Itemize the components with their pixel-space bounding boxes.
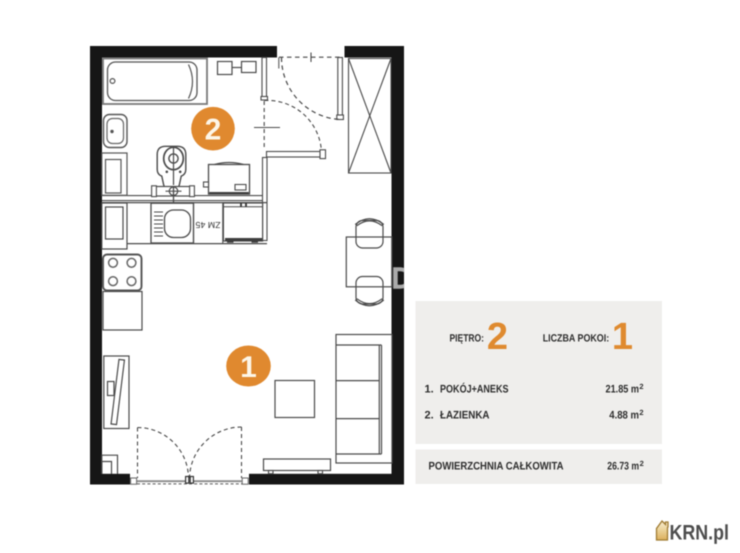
svg-text:PIĘTRO:: PIĘTRO: [450, 333, 485, 345]
svg-text:2: 2 [487, 316, 508, 358]
svg-text:2: 2 [205, 114, 222, 147]
svg-text:1: 1 [240, 351, 257, 384]
svg-text:2.: 2. [425, 410, 434, 422]
svg-text:26.73 m: 26.73 m [607, 461, 639, 473]
svg-text:1.: 1. [425, 384, 434, 396]
svg-text:4.88 m: 4.88 m [609, 410, 639, 422]
svg-text:LICZBA POKOI:: LICZBA POKOI: [543, 333, 610, 345]
svg-text:1: 1 [612, 316, 633, 358]
svg-text:2: 2 [639, 408, 643, 417]
svg-text:ZM 45: ZM 45 [195, 220, 220, 230]
svg-text:POWIERZCHNIA CAŁKOWITA: POWIERZCHNIA CAŁKOWITA [429, 461, 564, 473]
svg-text:KRN.pl: KRN.pl [670, 522, 730, 545]
svg-text:ŁAZIENKA: ŁAZIENKA [440, 410, 490, 422]
svg-text:21.85 m: 21.85 m [606, 384, 640, 396]
svg-text:POKÓJ+ANEKS: POKÓJ+ANEKS [440, 383, 509, 396]
svg-text:2: 2 [639, 382, 643, 391]
svg-text:2: 2 [640, 459, 644, 468]
